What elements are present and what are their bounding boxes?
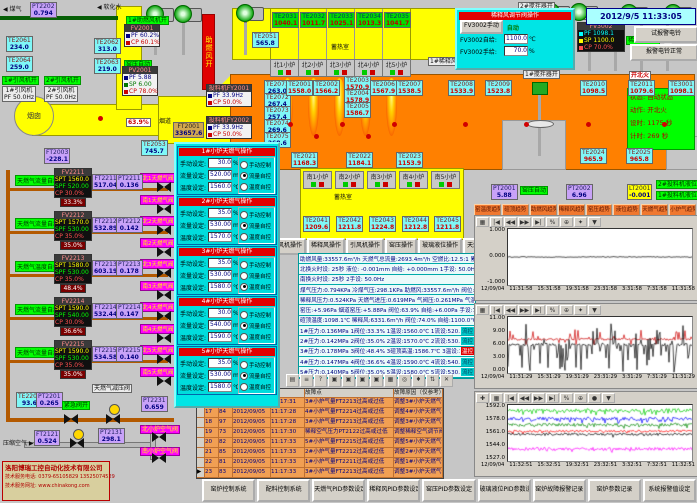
tag-value: 0.140 (118, 354, 141, 361)
popup-radio-group: 手动控制 流量自控 温度自控 (238, 157, 275, 194)
nav-button[interactable]: 窑炉故障报警记录 (533, 479, 586, 502)
north-gas-valve-icon[interactable] (157, 268, 171, 278)
nav-button[interactable]: 窑压PID参数设定 (422, 479, 475, 502)
tag-label: 烟道 (159, 118, 171, 125)
gas-supply-pipe (0, 16, 118, 20)
north-gas-valve-icon[interactable] (157, 311, 171, 321)
popup-field-input[interactable]: 35.0 (208, 258, 232, 268)
dilution-manual-button[interactable]: FV3002手动 (460, 20, 503, 34)
chart-toolbar: ▦|◀◀◀▶▶▶|%⊕✦▼ (475, 304, 697, 315)
tag-label: FT2121 (36, 431, 58, 438)
radio-icon[interactable] (240, 322, 248, 330)
controller-row: CP 60.1% (125, 39, 159, 46)
controller-row: PF 5.88 (123, 74, 157, 81)
controller-faceplate: 投料机FY2001 PF 33.9HzCP 50.0% (206, 84, 252, 107)
junction-dot (314, 134, 319, 139)
gas-main-bottom (6, 418, 174, 422)
controller-faceplate: 投料机FY2002 PF 33.9HzCP 50.0% (206, 116, 252, 139)
tag-value: 1168.3 (293, 160, 316, 167)
chart-tool-icon[interactable]: ⊕ (560, 305, 573, 315)
test-bell-button[interactable]: 试报警电铃 (634, 26, 697, 43)
valve-actuator-icon[interactable] (73, 429, 84, 440)
popup-radio-row[interactable]: 手动控制 (240, 309, 273, 320)
radio-icon[interactable] (240, 283, 248, 291)
tag-label: TE2073 (266, 107, 289, 114)
panel-row-text: 煤气压力:0.794KPa 冷煤气压:298.1KPa 助燃风:33557.6m… (300, 286, 474, 294)
popup-field-input[interactable]: 1580.0 (208, 282, 232, 292)
scada-screen: 烟囱 助燃风开 ◀ 煤气 PT2202 0.794 (0, 0, 697, 503)
tag-label: 63.9% (128, 119, 149, 126)
radio-icon[interactable] (240, 361, 248, 369)
nav-button[interactable]: 天燃气PID参数设定 (312, 479, 365, 502)
radio-icon[interactable] (240, 161, 248, 169)
alarm-row-fault: 5#小炉气量FT2215过高或过低 (305, 438, 394, 447)
radio-label: 手动控制 (249, 211, 271, 219)
chart-tool-icon[interactable]: ▼ (588, 217, 601, 227)
status-set-time: 设时: 1175 秒 (630, 117, 692, 130)
fan-wheel (174, 5, 192, 23)
chart-plot-area (507, 404, 693, 462)
dilution-manual-input[interactable]: 70.0 (504, 46, 528, 56)
radio-icon[interactable] (240, 383, 248, 391)
gas-loop-valve-position: 33.3% (60, 198, 86, 207)
gas-loop: 天燃气流量自动 FV2215 SPT 1590.0 SPF 530.00 CP … (0, 340, 180, 383)
alarm-row[interactable]: ▶ 23 83 2012/09/05 11:17:33 3#小炉气量FT2213… (197, 468, 443, 478)
process-tag: TE2024 965.9 (580, 148, 607, 164)
chart-tool-icon[interactable]: ▦ (476, 217, 489, 227)
controller-row-square (579, 32, 583, 36)
process-tag: 开北火 (629, 71, 651, 80)
valve-icon[interactable] (106, 414, 120, 424)
tag-label: TE3001 (670, 81, 693, 88)
gas-loop-controller: FV2214 SPT 1590.0 SPF 540.00 CP 30.0% (54, 297, 92, 327)
dilution-setpoint-row: FV3002自给: 1100.0 ℃ (458, 33, 572, 45)
tag-label: TE2031 (274, 13, 297, 20)
panel-row-text: 4#压力:0.147MPa 4阀位:36.6% 4温设:1590.0℃ 4流设:… (300, 358, 460, 366)
chart-tool-icon[interactable]: ▼ (602, 393, 615, 403)
popup-radio-row[interactable]: 手动控制 (240, 209, 273, 220)
burner-indicators (327, 69, 354, 76)
chart-xtick: 19:31:58 (566, 286, 589, 292)
tag-label: TE2008 (450, 81, 473, 88)
tag-value: 0.265 (38, 400, 61, 407)
radio-label: 手动控制 (249, 261, 271, 269)
alarm-row-time: 11:17:33 (271, 448, 305, 457)
tag-label: FT2212 (94, 218, 117, 225)
controller-title: 投料机FY2002 (207, 117, 251, 124)
panel-row: 1#压力:0.136MPa 1阀位:33.3% 1温设:1560.0℃ 1流设:… (299, 326, 475, 336)
valve-actuator-icon[interactable] (109, 404, 120, 415)
alarm-tool-icon[interactable]: ⇅ (426, 374, 439, 387)
north-gas-valve-icon[interactable] (157, 182, 171, 192)
controller-rows: PF 33.9HzCP 50.0% (207, 92, 251, 106)
popup-field-input[interactable]: 1580.0 (208, 382, 232, 392)
chart-tool-icon[interactable]: ✦ (574, 217, 587, 227)
chart-tool-icon[interactable]: |◀ (504, 393, 517, 403)
tag-value: 0.147 (118, 311, 141, 318)
alarm-row-selector (197, 408, 205, 417)
chimney-label: 烟囱 (27, 111, 41, 121)
alarm-row-number: 19 (205, 428, 219, 437)
burner-off-indicator (370, 70, 375, 75)
controller-row-text: CP 50.0% (213, 99, 242, 106)
chart-xtick: 7:31:29 (647, 374, 667, 380)
alarm-row-fault: 稀释空气压力PT2122过高或过低 (305, 428, 394, 437)
alarm-row-number: 17 (205, 408, 219, 417)
gas-loop: 天燃气流量自动 FV2214 SPT 1590.0 SPF 540.00 CP … (0, 297, 180, 340)
radio-icon[interactable] (240, 261, 248, 269)
chart-tool-icon[interactable]: ⊕ (574, 393, 587, 403)
tag-value: 1098.1 (670, 88, 693, 95)
radio-icon[interactable] (240, 172, 248, 180)
popup-radios: 手动控制 流量自控 温度自控 (240, 259, 273, 292)
chart-tool-icon[interactable]: ⊕ (560, 217, 573, 227)
gas-loop-spt: SPT 1560.0 (55, 176, 91, 183)
chart-ytick: 3.00 (475, 354, 505, 360)
nav-button[interactable]: 稀释风PID参数设定 (367, 479, 420, 502)
process-tag: TE2005 1586.7 (344, 102, 371, 118)
controller-row: CP 78.0% (123, 88, 157, 95)
alarm-row-selector (197, 428, 205, 437)
chart-tool-icon[interactable]: ▶▶ (532, 393, 545, 403)
nav-button[interactable]: 窑炉控制系统 (202, 479, 255, 502)
nav-button[interactable]: 窑炉参数记录 (588, 479, 641, 502)
popup-radio-row[interactable]: 手动控制 (240, 159, 273, 170)
alarm-row-date: 2012/09/05 (233, 458, 271, 467)
valve-icon[interactable] (152, 453, 166, 463)
controller-title: 投料机FY2001 (207, 85, 251, 92)
popup-radio-row[interactable]: 温度自控 (240, 281, 273, 292)
alarm-tool-icon[interactable]: ▣ (328, 374, 341, 387)
alarm-row-code: 85 (219, 448, 233, 457)
dilution-mode-row: FV3002手动 自动 (458, 21, 572, 33)
fan-icon (174, 5, 202, 25)
popup-field-input[interactable]: 35.0 (208, 208, 232, 218)
mixer1-motor (532, 82, 548, 95)
chart-tool-icon[interactable]: ▶| (546, 393, 559, 403)
tag-value: 1153.9 (398, 160, 421, 167)
alarm-row-selector (197, 418, 205, 427)
tag-value: 1212.8 (404, 224, 427, 231)
alarm-row[interactable]: 21 85 2012/09/05 11:17:33 2#小炉气量FT2212过高… (197, 448, 443, 458)
radio-icon[interactable] (240, 372, 248, 380)
popup-radio-row[interactable]: 温度自控 (240, 331, 273, 342)
tag-value: 6.96 (568, 192, 591, 199)
alarm-tool-icon[interactable]: ▤ (286, 374, 299, 387)
tag-label: TE2074 (266, 120, 289, 127)
alarm-tool-icon[interactable]: ◎ (398, 374, 411, 387)
burner-indicators (304, 181, 331, 188)
tag-value: 1224.8 (371, 224, 394, 231)
burner-on-indicator (278, 70, 283, 75)
junction-dot (586, 122, 591, 127)
chart-tool-icon[interactable]: ▶| (532, 305, 545, 315)
chart-xtick: 11:31:29 (672, 374, 695, 380)
alarm-tool-icon[interactable]: ▣ (356, 374, 369, 387)
alarm-tool-icon[interactable]: ✕ (440, 374, 453, 387)
alarm-row-code: 81 (219, 458, 233, 467)
tag-label: TE2006 (372, 81, 395, 88)
chart-tool-icon[interactable]: ◀◀ (504, 305, 517, 315)
bell-ok-button[interactable]: 报警电铃正常 (630, 44, 697, 61)
alarm-row[interactable]: 22 81 2012/09/05 11:17:33 1#小炉气量FT2211过高… (197, 458, 443, 468)
popup-field-input[interactable]: 520.00 (208, 170, 232, 180)
controller-row: CP 50.0% (207, 99, 251, 106)
tag-label: 蓄热室 (331, 44, 349, 51)
tag-value: 1567.9 (372, 88, 395, 95)
alarm-row-time: 11:17:33 (271, 458, 305, 467)
chart-ytick: 0.00 (475, 367, 505, 373)
gas-loop-cp: CP 35.0% (55, 276, 91, 283)
tag-value: PF 50.0Hz (46, 94, 76, 101)
junction-dot (662, 122, 667, 127)
alarm-row[interactable]: 17 84 2012/09/05 11:17:28 4#小炉气量FT2214过高… (197, 408, 443, 418)
popup-field-input[interactable]: 530.00 (208, 270, 232, 280)
chart-xtick: 23:31:29 (594, 374, 617, 380)
tag-value: 1538.5 (398, 88, 421, 95)
burner-on-indicator (306, 70, 311, 75)
chart-tool-icon[interactable]: |◀ (490, 305, 503, 315)
junction-dot (366, 134, 371, 139)
process-tag: TE2033 1025.1 (328, 12, 355, 28)
radio-label: 手动控制 (249, 311, 271, 319)
chart-tool-icon[interactable]: % (546, 217, 559, 227)
junction-dot (288, 122, 293, 127)
tag-value: 0.524 (36, 438, 58, 445)
tag-value: 1566.2 (315, 88, 338, 95)
radio-icon[interactable] (240, 211, 248, 219)
gas-setpoint-popup: 1#小炉天燃气操作 手动设定: 30.0 % 流量设定: (174, 142, 280, 408)
chart-tool-icon[interactable]: ▶| (532, 217, 545, 227)
popup-field-input[interactable]: 530.00 (208, 370, 232, 380)
process-tag: 2#投料机液位自动 (656, 180, 697, 189)
popup-section: 3#小炉天燃气操作 手动设定: 35.0 % 流量设定: (177, 246, 277, 295)
tag-label: TE2051 (254, 33, 277, 40)
dilution-setpoint-input[interactable]: 1100.0 (504, 34, 528, 44)
tag-label: TE2061 (8, 37, 31, 44)
popup-radio-row[interactable]: 温度自控 (240, 381, 273, 392)
process-tag: TE2022 1184.1 (346, 152, 373, 168)
popup-field-input[interactable]: 35.0 (208, 358, 232, 368)
radio-icon[interactable] (240, 183, 248, 191)
gas-loop-spt: SPT 1590.0 (55, 305, 91, 312)
alarm-tool-icon[interactable]: ? (314, 374, 327, 387)
panel-row: 煤气压力:0.794KPa 冷煤气压:298.1KPa 助燃风:33557.6m… (299, 285, 475, 295)
process-tag: 1#引风机开 (2, 76, 39, 85)
valve-icon[interactable] (152, 432, 166, 442)
tag-value: 1533.9 (450, 88, 473, 95)
south-gas-valve-icon[interactable] (157, 376, 171, 386)
nav-button[interactable]: 玻璃液位PID参数设定 (478, 479, 531, 502)
tag-value: 1523.8 (487, 88, 510, 95)
tag-value: PF 50.0Hz (4, 94, 34, 101)
tag-label: TE2075 (266, 133, 289, 140)
alarm-row[interactable]: 19 73 2012/09/05 11:17:30 稀释空气压力PT2122过高… (197, 428, 443, 438)
tag-value: 1098.5 (582, 88, 605, 95)
controller-row-text: PF 33.9Hz (213, 92, 243, 99)
controller-row-square (208, 126, 212, 130)
popup-section-title: 3#小炉天燃气操作 (179, 248, 275, 256)
popup-radio-row[interactable]: 流量自控 (240, 320, 273, 331)
north-gas-valve-icon[interactable] (157, 225, 171, 235)
junction-dot (98, 116, 103, 121)
alarm-row-code: 82 (219, 438, 233, 447)
popup-field-input[interactable]: 30.0 (208, 308, 232, 318)
popup-radio-row[interactable]: 温度自控 (240, 231, 273, 242)
popup-field-label: 手动设定: (180, 209, 208, 218)
gas-loop-controller: FV2212 SPT 1570.0 SPF 530.00 CP 35.0% (54, 211, 92, 241)
flow-mode-chip: 流控 (461, 337, 474, 345)
process-tag: TE2002 1566.2 (313, 80, 340, 96)
tag-label: 压缩空气 ▶ (3, 440, 34, 447)
popup-field-label: 手动设定: (180, 159, 208, 168)
chart-xtick: 15:31:29 (537, 374, 560, 380)
chart-ytick: 1578.0 (475, 416, 505, 422)
chart-tool-icon[interactable]: |◀ (490, 217, 503, 227)
chart-ytick: -1.000 (475, 279, 505, 285)
popup-field-label: 温度设定: (180, 383, 208, 392)
tag-label: 1#投料机液位自动 (658, 192, 697, 199)
process-tag: 压缩空气 ▶ (2, 440, 35, 447)
burner-label: 南3小炉 (368, 172, 395, 181)
tag-label: FT2003 (46, 149, 68, 156)
process-tag: 2#引风机 PF 50.0Hz (44, 86, 78, 102)
popup-field-input[interactable]: 1560.0 (208, 182, 232, 192)
chart-tool-icon[interactable]: ▼ (588, 305, 601, 315)
popup-field-input[interactable]: 1590.0 (208, 332, 232, 342)
north-gas-valve-icon[interactable] (157, 354, 171, 364)
tag-label: FT2214 (94, 304, 117, 311)
tag-value: 1211.8 (436, 224, 459, 231)
popup-field-input[interactable]: 530.00 (208, 220, 232, 230)
chart-tool-icon[interactable]: ▶▶ (518, 305, 531, 315)
radio-label: 流量自控 (249, 272, 271, 280)
tag-value: 965.8 (628, 156, 651, 163)
alarm-tool-icon[interactable]: ≡ (300, 374, 313, 387)
process-tag: 烟道 (158, 118, 172, 125)
radio-icon[interactable] (240, 333, 248, 341)
popup-radio-row[interactable]: 手动控制 (240, 359, 273, 370)
alarm-row-cause: 调整3#小炉天燃气调节阀或自动调节 (394, 398, 443, 407)
process-tag: 1#搅拌器开 (523, 70, 560, 79)
alarm-row-cause: 调整稀释空气调节阀或自动调节 (394, 428, 443, 437)
tag-label: PT2213 (118, 261, 141, 268)
tag-value: -228.1 (46, 156, 68, 163)
tag-label: TE2044 (404, 217, 427, 224)
tag-value: 5.88 (493, 192, 516, 199)
dilution-manual-label: FV3002手给: (460, 47, 504, 56)
popup-radio-group: 手动控制 流量自控 温度自控 (238, 207, 275, 244)
chart-xticks: 12/09/0411:31:5815:31:5819:31:5823:31:58… (475, 286, 697, 293)
gas-loop-controller-title: FV2211 (55, 169, 91, 176)
controller-row-square (208, 101, 212, 105)
radio-label: 温度自控 (249, 183, 271, 191)
popup-radio-row[interactable]: 流量自控 (240, 270, 273, 281)
controller-row: CP 50.0% (207, 131, 251, 138)
chart-tool-icon[interactable]: ● (588, 393, 601, 403)
alarm-tool-icon[interactable]: ▦ (384, 374, 397, 387)
tag-label: 1#引风机 (4, 87, 34, 94)
chart-ytick: 11.00 (475, 315, 505, 321)
chart-tool-icon[interactable]: % (560, 393, 573, 403)
process-tag: TE2034 1013.3 (356, 12, 383, 28)
alarm-row[interactable]: 18 97 2012/09/05 11:17:28 3#小炉气量FT2213过高… (197, 418, 443, 428)
panel-rows: 助燃风量:33557.6m³/h 天燃气总流量:2693.4m³/h 空燃比:1… (299, 254, 475, 378)
alarm-tool-icon[interactable]: ▣ (342, 374, 355, 387)
chart-xtick: 7:31:58 (647, 286, 667, 292)
chart-tool-icon[interactable]: ▦ (476, 305, 489, 315)
tag-label: PT2211 (118, 175, 141, 182)
popup-field-input[interactable]: 540.00 (208, 320, 232, 330)
chart-tool-icon[interactable]: ▶▶ (518, 217, 531, 227)
burner-on-indicator (407, 182, 412, 187)
process-tag: TE2043 1224.8 (369, 216, 396, 232)
process-tag: ◀ 煤气 (2, 6, 23, 13)
tag-label: TE2003 (346, 77, 369, 84)
popup-radio-row[interactable]: 流量自控 (240, 170, 273, 181)
popup-radio-row[interactable]: 温度自控 (240, 181, 273, 192)
tag-value: 1209.6 (305, 224, 328, 231)
alarm-tool-icon[interactable]: ♦ (412, 374, 425, 387)
alarm-row[interactable]: 20 82 2012/09/05 11:17:33 5#小炉气量FT2215过高… (197, 438, 443, 448)
radio-icon[interactable] (240, 272, 248, 280)
tag-label: TE2021 (293, 153, 316, 160)
popup-field-input[interactable]: 30.0 (208, 158, 232, 168)
popup-field-label: 手动设定: (180, 259, 208, 268)
panel-row-text: 南换火时设: 25秒 2手设: 50.0Hz (300, 275, 474, 283)
nav-button[interactable]: 配料控制系统 (257, 479, 310, 502)
datetime-display: 2012/9/5 11:33:05 (586, 8, 696, 25)
chart-tool-icon[interactable]: ◀◀ (504, 217, 517, 227)
popup-section: 2#小炉天燃气操作 手动设定: 35.0 % 流量设定: (177, 196, 277, 245)
chart-tool-icon[interactable]: ✦ (574, 305, 587, 315)
tag-label: TE2010 (582, 81, 605, 88)
radio-icon[interactable] (240, 233, 248, 241)
chart-tool-icon[interactable]: % (546, 305, 559, 315)
radio-icon[interactable] (240, 222, 248, 230)
nav-button[interactable]: 系统报警值设定 (643, 479, 696, 502)
controller-row-square (208, 133, 212, 137)
chart-toolbar: ▦|◀◀◀▶▶▶|%⊕✦▼ (475, 216, 697, 227)
level-trend-chart: ▦|◀◀◀▶▶▶|%⊕✦▼ 1.0000.000-1.000 12/09/041… (474, 215, 697, 301)
chart-tool-icon[interactable]: ◀◀ (518, 393, 531, 403)
controller-row-square (208, 94, 212, 98)
tag-label: TE2043 (371, 217, 394, 224)
process-tag: TE2042 1211.8 (336, 216, 363, 232)
chart-xtick: 11:31:58 (672, 286, 695, 292)
popup-field-input[interactable]: 1570.0 (208, 232, 232, 242)
valve-icon[interactable] (64, 414, 78, 424)
popup-radio-row[interactable]: 流量自控 (240, 220, 273, 231)
popup-radios: 手动控制 流量自控 温度自控 (240, 309, 273, 342)
chart-tool-icon[interactable]: ▦ (490, 393, 503, 403)
alarm-tool-icon[interactable]: ▣ (370, 374, 383, 387)
radio-label: 手动控制 (249, 161, 271, 169)
burner-on-indicator (343, 182, 348, 187)
controller-faceplate: FV3002 PF 1098.1SP 1100.0CP 70.0% (577, 22, 625, 52)
burner-label: 北5小炉 (383, 60, 410, 69)
popup-radio-row[interactable]: 流量自控 (240, 370, 273, 381)
gas-loop-controller: FV2213 SPT 1580.0 SPF 530.00 CP 35.0% (54, 254, 92, 284)
process-tag: TE2032 1011.7 (300, 12, 327, 28)
tag-label: FT2001 (175, 123, 202, 130)
popup-radio-row[interactable]: 手动控制 (240, 259, 273, 270)
radio-icon[interactable] (240, 311, 248, 319)
panel-row-text: 3#压力:0.178MPa 3阀位:48.4% 3碹顶高温:1586.7℃ 3温… (300, 347, 460, 355)
chart-tool-icon[interactable]: ✚ (476, 393, 489, 403)
junction-dot (392, 122, 397, 127)
controller-rows: PF 60.2%CP 60.1% (125, 32, 159, 46)
